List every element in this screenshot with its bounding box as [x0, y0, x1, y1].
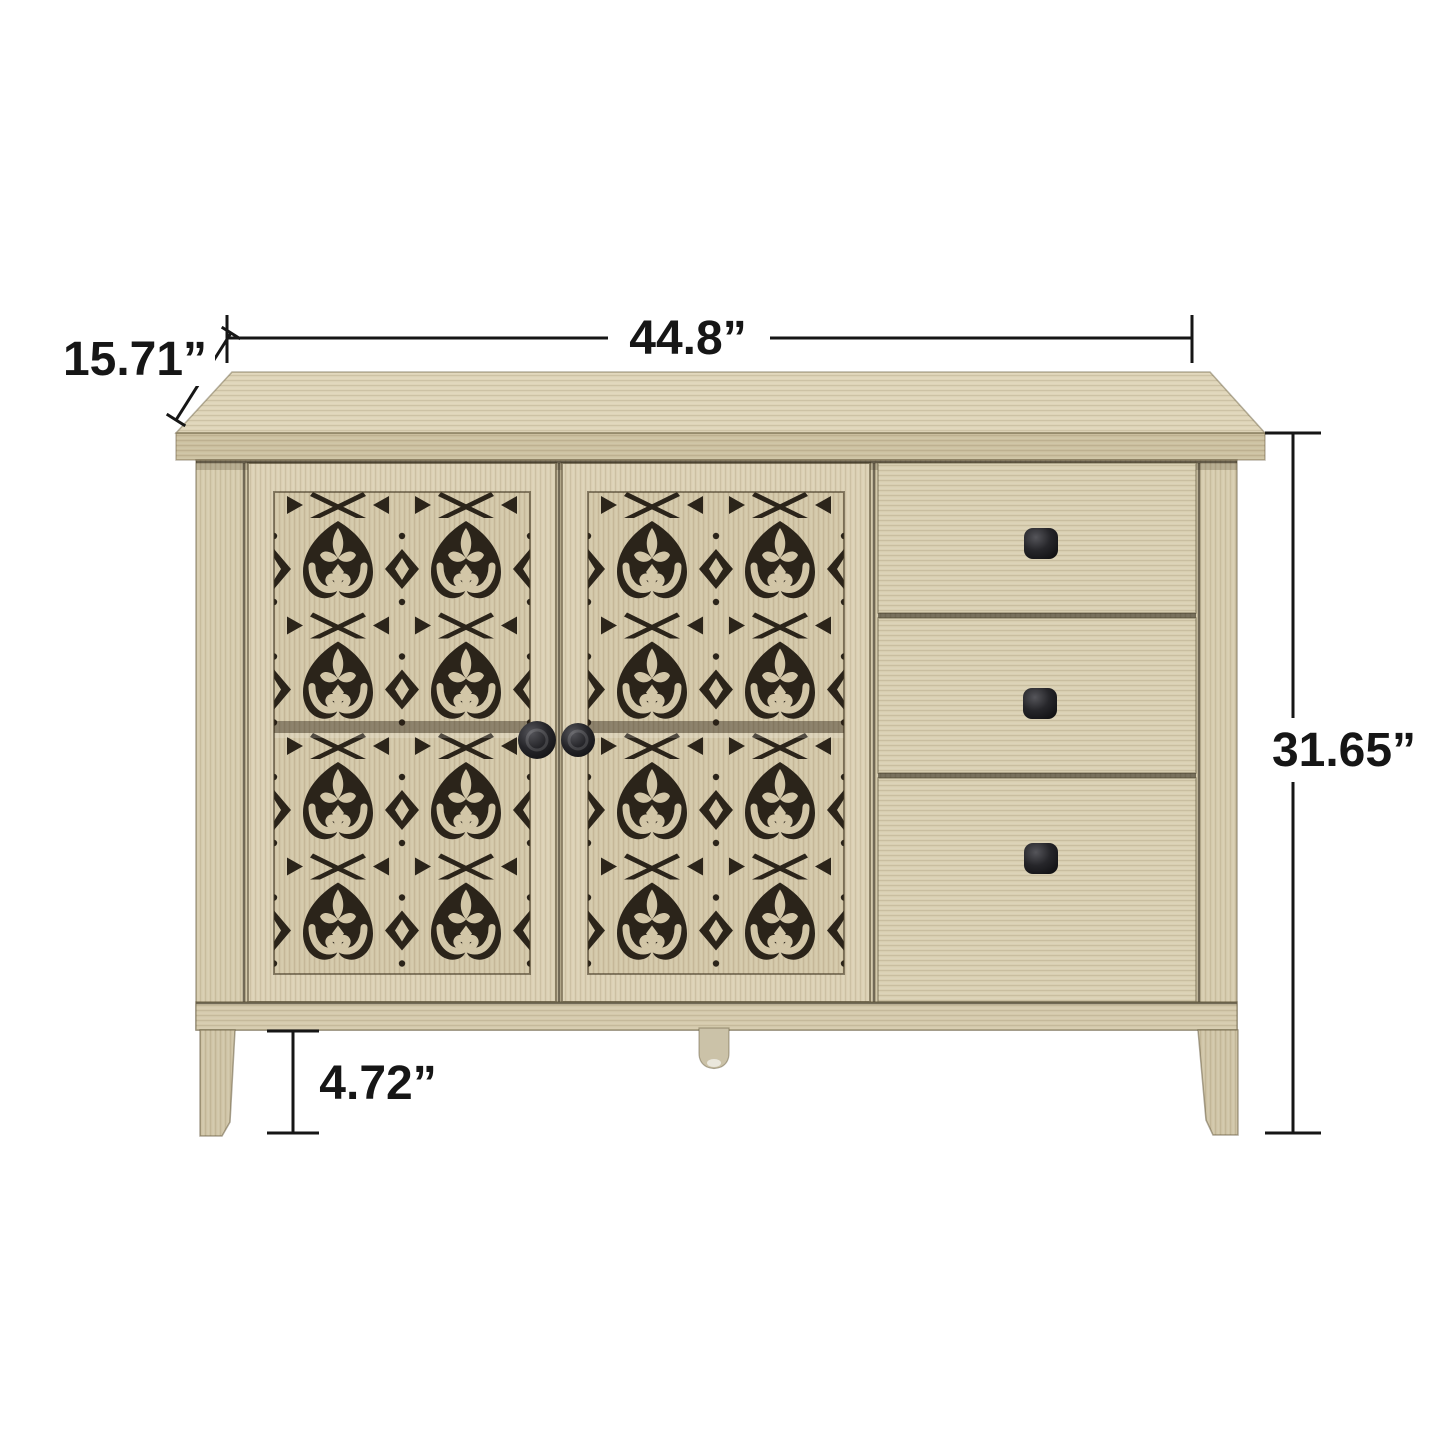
cabinet-door-left: [248, 463, 556, 1002]
sideboard-diagram-canvas: 44.8” 15.71” 31.65” 4.72”: [0, 0, 1445, 1445]
drawer-3-knob: [1024, 843, 1058, 874]
depth-label: 15.71”: [63, 333, 207, 386]
drawer-1-knob: [1024, 528, 1058, 559]
drawer-1: [878, 463, 1196, 613]
door-left-panel: [274, 492, 530, 974]
door-right-shelf-shadow: [588, 721, 844, 733]
leg-height-label: 4.72”: [319, 1057, 436, 1110]
leg-center-highlight: [707, 1059, 721, 1067]
drawer-2: [878, 618, 1196, 773]
depth-tick-bottom: [167, 414, 186, 426]
tabletop: [176, 372, 1265, 460]
drawer-2-knob: [1023, 688, 1057, 719]
door-left-shelf-shadow: [274, 721, 530, 733]
height-label: 31.65”: [1272, 724, 1416, 777]
cabinet-door-right: [562, 463, 870, 1002]
tabletop-front-edge-grain: [176, 433, 1265, 460]
door-right-panel: [588, 492, 844, 974]
width-label: 44.8”: [629, 312, 746, 365]
height-dimension: [1265, 433, 1321, 1133]
drawer-stack: [878, 463, 1196, 1002]
tabletop-surface-grain: [176, 372, 1265, 433]
door-right-knob: [561, 723, 595, 757]
sideboard-cabinet: [176, 372, 1265, 1136]
bottom-apron: [196, 1002, 1237, 1030]
product-dimension-diagram: 44.8” 15.71” 31.65” 4.72”: [0, 0, 1445, 1445]
drawer-3: [878, 778, 1196, 1002]
door-left-knob: [518, 721, 556, 759]
